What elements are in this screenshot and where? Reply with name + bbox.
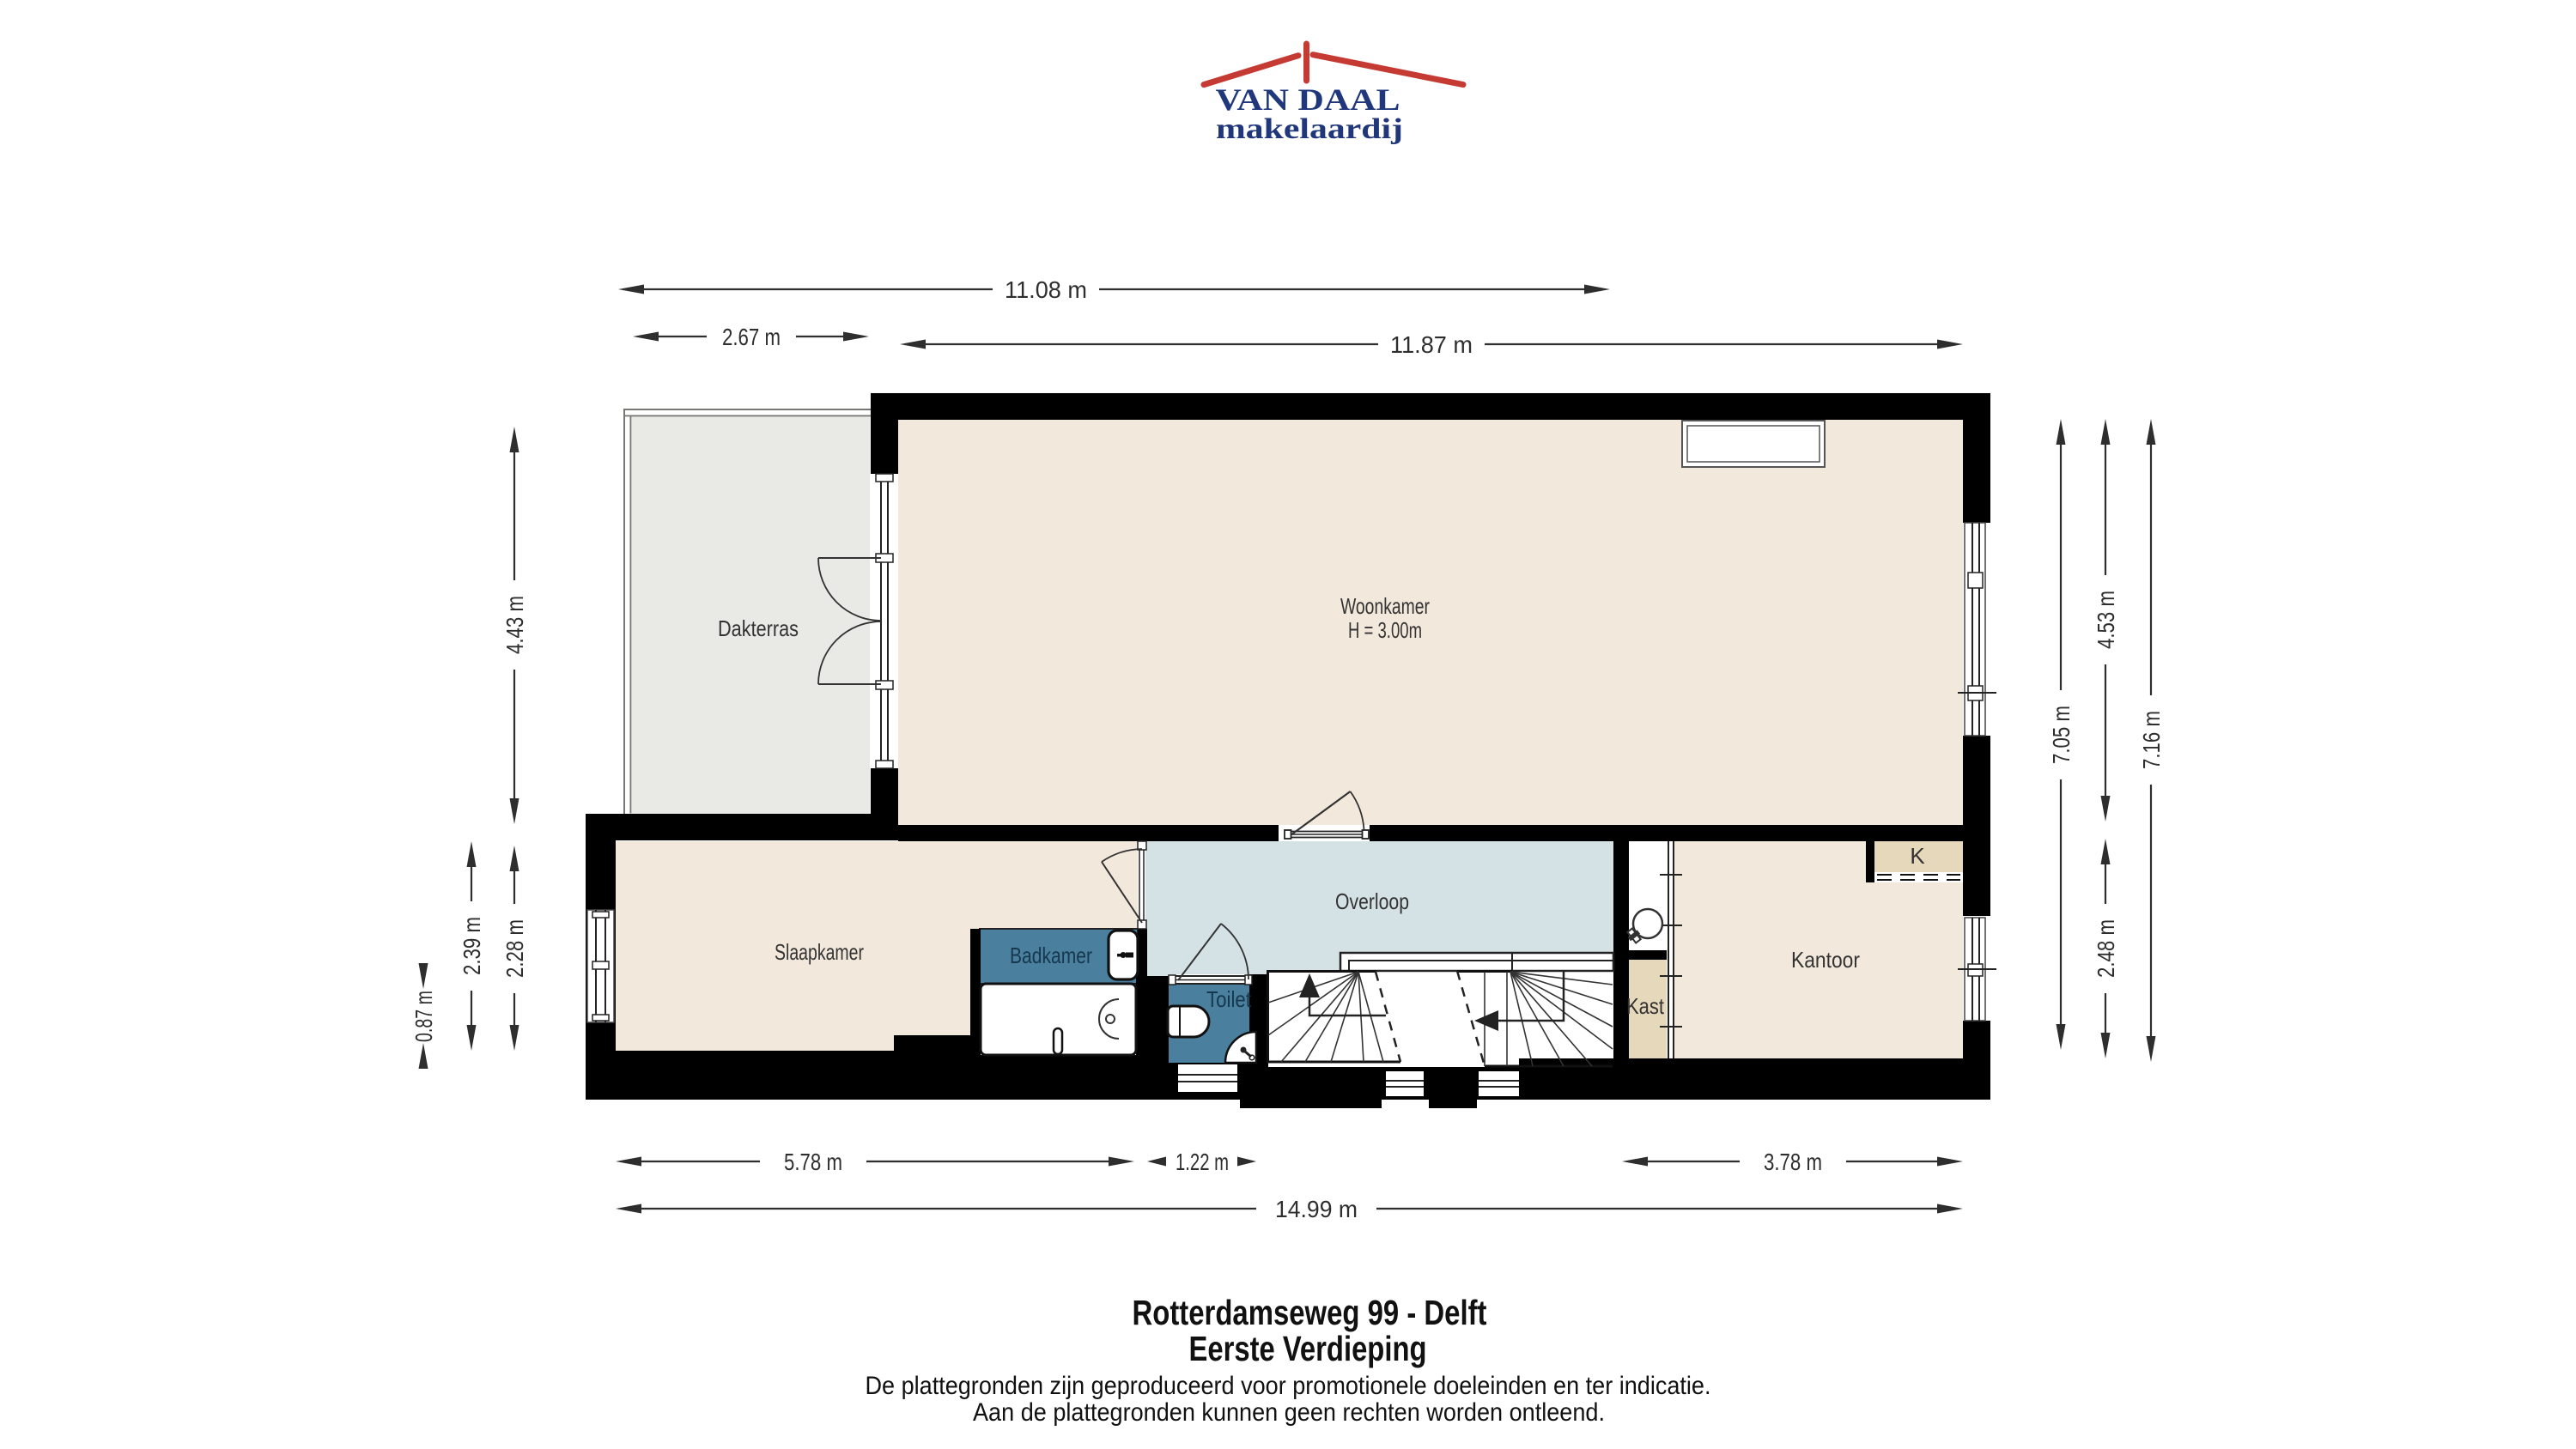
svg-text:Dakterras: Dakterras: [718, 615, 799, 641]
svg-text:Kast: Kast: [1626, 993, 1665, 1019]
svg-text:4.53 m: 4.53 m: [2093, 591, 2119, 649]
svg-text:7.05 m: 7.05 m: [2048, 706, 2075, 764]
svg-text:5.78 m: 5.78 m: [784, 1149, 842, 1175]
svg-text:K: K: [1910, 843, 1925, 869]
svg-text:Kantoor: Kantoor: [1791, 947, 1860, 973]
svg-text:Eerste Verdieping: Eerste Verdieping: [1189, 1329, 1427, 1368]
svg-text:7.16 m: 7.16 m: [2138, 711, 2165, 769]
svg-text:11.08 m: 11.08 m: [1005, 276, 1087, 303]
svg-text:2.48 m: 2.48 m: [2093, 919, 2119, 978]
svg-text:2.39 m: 2.39 m: [459, 917, 485, 975]
svg-text:14.99 m: 14.99 m: [1275, 1196, 1358, 1222]
svg-text:Overloop: Overloop: [1335, 888, 1409, 914]
svg-text:4.43 m: 4.43 m: [501, 596, 528, 654]
svg-text:Rotterdamseweg 99 - Delft: Rotterdamseweg 99 - Delft: [1133, 1293, 1487, 1332]
svg-text:makelaardij: makelaardij: [1216, 113, 1403, 145]
svg-text:11.87 m: 11.87 m: [1390, 331, 1473, 358]
svg-text:2.67 m: 2.67 m: [722, 324, 781, 350]
svg-text:VAN DAAL: VAN DAAL: [1216, 82, 1400, 117]
svg-text:2.28 m: 2.28 m: [501, 919, 528, 978]
svg-text:Toilet: Toilet: [1206, 986, 1252, 1012]
svg-text:0.87 m: 0.87 m: [410, 991, 437, 1042]
svg-text:3.78 m: 3.78 m: [1764, 1149, 1822, 1175]
svg-text:De plattegronden zijn geproduc: De plattegronden zijn geproduceerd voor …: [866, 1372, 1711, 1400]
svg-text:Badkamer: Badkamer: [1010, 943, 1092, 968]
svg-text:Aan de plattegronden kunnen ge: Aan de plattegronden kunnen geen rechten…: [973, 1398, 1605, 1427]
svg-text:1.22 m: 1.22 m: [1176, 1149, 1229, 1175]
svg-text:Slaapkamer: Slaapkamer: [775, 939, 864, 965]
svg-text:Woonkamer: Woonkamer: [1340, 593, 1430, 619]
svg-text:H = 3.00m: H = 3.00m: [1348, 617, 1422, 643]
